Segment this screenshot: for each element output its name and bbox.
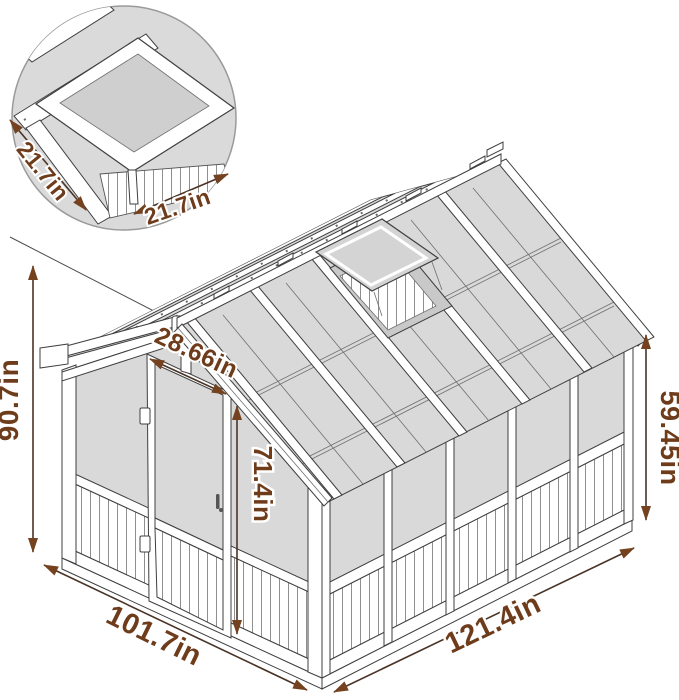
door-hinge-top [140, 408, 150, 424]
vent-detail-inset: 21.7in 21.7in [10, 0, 236, 230]
diagram-canvas: 90.7in 101.7in 121.4in 59.45in 71.4in 28… [0, 0, 679, 700]
dim-label-door-height: 71.4in [248, 446, 278, 523]
front-left-corner-post [62, 365, 76, 564]
door [140, 354, 231, 638]
greenhouse-dimension-diagram: 90.7in 101.7in 121.4in 59.45in 71.4in 28… [0, 0, 679, 700]
door-handle [216, 494, 220, 509]
dim-label-total-height: 90.7in [0, 359, 24, 441]
front-right-corner-post [308, 484, 322, 678]
dim-label-wall-height: 59.45in [655, 390, 679, 485]
door-hinge-bottom [140, 536, 150, 552]
back-corner-post [624, 334, 633, 524]
left-eave-beam-end [40, 344, 68, 368]
